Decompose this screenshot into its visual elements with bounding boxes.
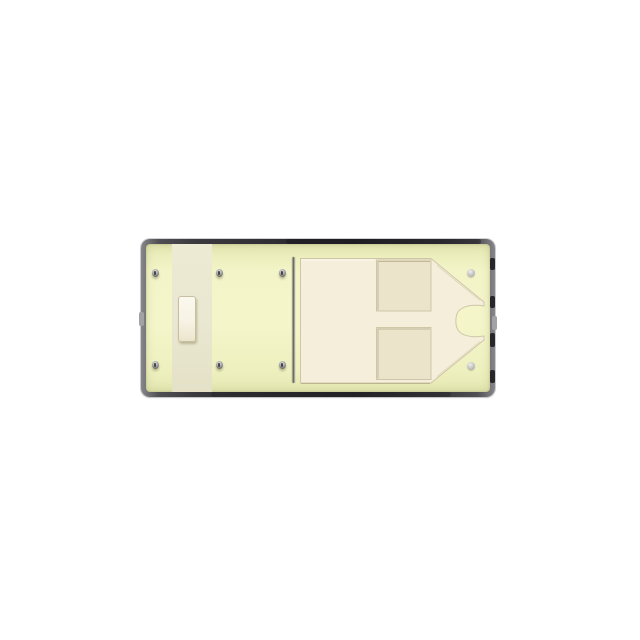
terminal-pin [279,361,286,369]
lead-knot [490,370,495,383]
case-latch-right [492,316,497,330]
component-base [146,244,490,392]
case-bottom-lead-shade [211,392,451,397]
terminal-pin [152,361,159,369]
lead-knot [490,333,495,347]
lead-knot [490,258,495,270]
armature-recess-top [377,260,432,311]
product-image-canvas [0,0,640,640]
terminal-pin [216,361,223,369]
case-latch-left [139,312,144,326]
terminal-pin [279,269,286,277]
pivot-pin [467,269,475,277]
lead-knot [490,296,495,308]
armature-recess-bottom [377,328,432,380]
terminal-pin [216,269,223,277]
actuator-block [178,296,196,342]
divider-blade [292,257,295,383]
relay-component [141,239,495,397]
armature-structure [300,258,488,384]
pivot-pin [467,362,475,370]
terminal-pin [152,269,159,277]
